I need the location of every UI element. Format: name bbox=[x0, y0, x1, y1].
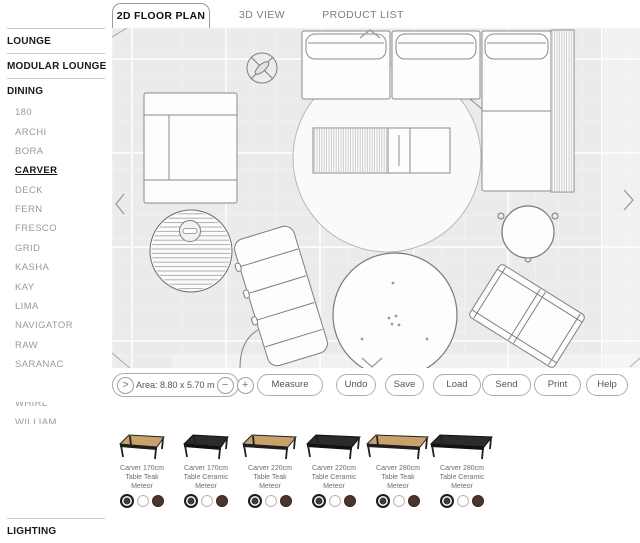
daybed[interactable] bbox=[144, 93, 237, 203]
swatch-meteor-black[interactable] bbox=[184, 494, 198, 508]
sidebar-item-fresco[interactable]: FRESCO bbox=[0, 219, 112, 238]
product-card-carver-220-ceramic[interactable]: Carver 220cm Table Ceramic Meteor bbox=[302, 424, 366, 508]
swatch-java-brown[interactable] bbox=[408, 495, 420, 507]
product-thumbnail bbox=[241, 424, 299, 462]
product-label: Carver 220cm Table Teak Meteor bbox=[248, 464, 292, 491]
product-thumbnail bbox=[430, 424, 494, 462]
parasol-closed-icon[interactable] bbox=[247, 53, 277, 83]
product-card-carver-280-ceramic[interactable]: Carver 280cm Table Ceramic Meteor bbox=[430, 424, 494, 508]
sidebar-item-raw[interactable]: RAW bbox=[0, 336, 112, 355]
print-button[interactable]: Print bbox=[534, 374, 581, 396]
save-button[interactable]: Save bbox=[385, 374, 424, 396]
product-thumbnail bbox=[305, 424, 363, 462]
floor-plan-drawing bbox=[112, 28, 640, 368]
tab-3d-view[interactable]: 3D VIEW bbox=[239, 0, 285, 28]
product-card-carver-170-ceramic[interactable]: Carver 170cm Table Ceramic Meteor bbox=[174, 424, 238, 508]
measure-button[interactable]: Measure bbox=[257, 374, 323, 396]
swatch-meteor-black[interactable] bbox=[440, 494, 454, 508]
send-button[interactable]: Send bbox=[482, 374, 531, 396]
swatch-white[interactable] bbox=[201, 495, 213, 507]
swatch-white[interactable] bbox=[265, 495, 277, 507]
swatch-meteor-black[interactable] bbox=[248, 494, 262, 508]
product-label: Carver 280cm Table Ceramic Meteor bbox=[440, 464, 485, 491]
sidebar-item-180[interactable]: 180 bbox=[0, 103, 112, 122]
area-label: Area: 8.80 x 5.70 m bbox=[134, 380, 217, 390]
product-card-carver-170-teak[interactable]: Carver 170cm Table Teak Meteor bbox=[110, 424, 174, 508]
swatch-java-brown[interactable] bbox=[344, 495, 356, 507]
product-thumbnail bbox=[366, 424, 430, 462]
product-strip: Carver 170cm Table Teak Meteor Carver 17… bbox=[0, 424, 640, 511]
product-card-carver-280-teak[interactable]: Carver 280cm Table Teak Meteor bbox=[366, 424, 430, 508]
sidebar-item-carver[interactable]: CARVER bbox=[0, 161, 112, 180]
sidebar-item-deck[interactable]: DECK bbox=[0, 181, 112, 200]
sidebar-item-bora[interactable]: BORA bbox=[0, 142, 112, 161]
sidebar-item-modular-lounge[interactable]: MODULAR LOUNGE bbox=[0, 54, 112, 78]
round-lounger[interactable] bbox=[150, 210, 232, 292]
product-label: Carver 170cm Table Teak Meteor bbox=[120, 464, 164, 491]
sidebar-item-kay[interactable]: KAY bbox=[0, 277, 112, 296]
sidebar-item-grid[interactable]: GRID bbox=[0, 239, 112, 258]
zoom-out-button[interactable]: − bbox=[217, 377, 234, 394]
product-card-carver-220-teak[interactable]: Carver 220cm Table Teak Meteor bbox=[238, 424, 302, 508]
sidebar-item-lima[interactable]: LIMA bbox=[0, 297, 112, 316]
swatch-meteor-black[interactable] bbox=[376, 494, 390, 508]
product-thumbnail bbox=[117, 424, 167, 462]
load-button[interactable]: Load bbox=[433, 374, 481, 396]
help-button[interactable]: Help bbox=[586, 374, 628, 396]
swatch-white[interactable] bbox=[393, 495, 405, 507]
floor-plan-canvas[interactable] bbox=[112, 28, 640, 368]
expand-icon[interactable]: > bbox=[117, 377, 134, 394]
coffee-table[interactable] bbox=[313, 128, 450, 173]
zoom-in-button[interactable]: + bbox=[237, 377, 254, 394]
swatch-java-brown[interactable] bbox=[472, 495, 484, 507]
swatch-meteor-black[interactable] bbox=[120, 494, 134, 508]
swatch-white[interactable] bbox=[329, 495, 341, 507]
sidebar-item-dining[interactable]: DINING bbox=[0, 79, 112, 103]
swatch-meteor-black[interactable] bbox=[312, 494, 326, 508]
product-label: Carver 170cm Table Ceramic Meteor bbox=[184, 464, 229, 491]
product-thumbnail bbox=[181, 424, 231, 462]
product-label: Carver 280cm Table Teak Meteor bbox=[376, 464, 420, 491]
tab-2d-floor-plan[interactable]: 2D FLOOR PLAN bbox=[112, 3, 210, 28]
swatch-java-brown[interactable] bbox=[152, 495, 164, 507]
sidebar-item-fern[interactable]: FERN bbox=[0, 200, 112, 219]
tab-product-list[interactable]: PRODUCT LIST bbox=[322, 0, 404, 28]
swatch-java-brown[interactable] bbox=[216, 495, 228, 507]
tab-bar: 2D FLOOR PLAN 3D VIEW PRODUCT LIST bbox=[0, 0, 640, 28]
sidebar-item-archi[interactable]: ARCHI bbox=[0, 122, 112, 141]
sidebar-item-navigator[interactable]: NAVIGATOR bbox=[0, 316, 112, 335]
area-control: > Area: 8.80 x 5.70 m − + bbox=[112, 373, 239, 397]
sidebar-item-lounge[interactable]: LOUNGE bbox=[0, 29, 112, 53]
product-label: Carver 220cm Table Ceramic Meteor bbox=[312, 464, 357, 491]
dining-table-round[interactable] bbox=[333, 253, 457, 368]
swatch-white[interactable] bbox=[137, 495, 149, 507]
sidebar-item-kasha[interactable]: KASHA bbox=[0, 258, 112, 277]
sidebar-item-lighting[interactable]: LIGHTING bbox=[0, 519, 112, 543]
swatch-java-brown[interactable] bbox=[280, 495, 292, 507]
bottom-toolbar: > Area: 8.80 x 5.70 m − + Measure Undo S… bbox=[0, 368, 640, 402]
swatch-white[interactable] bbox=[457, 495, 469, 507]
undo-button[interactable]: Undo bbox=[336, 374, 376, 396]
